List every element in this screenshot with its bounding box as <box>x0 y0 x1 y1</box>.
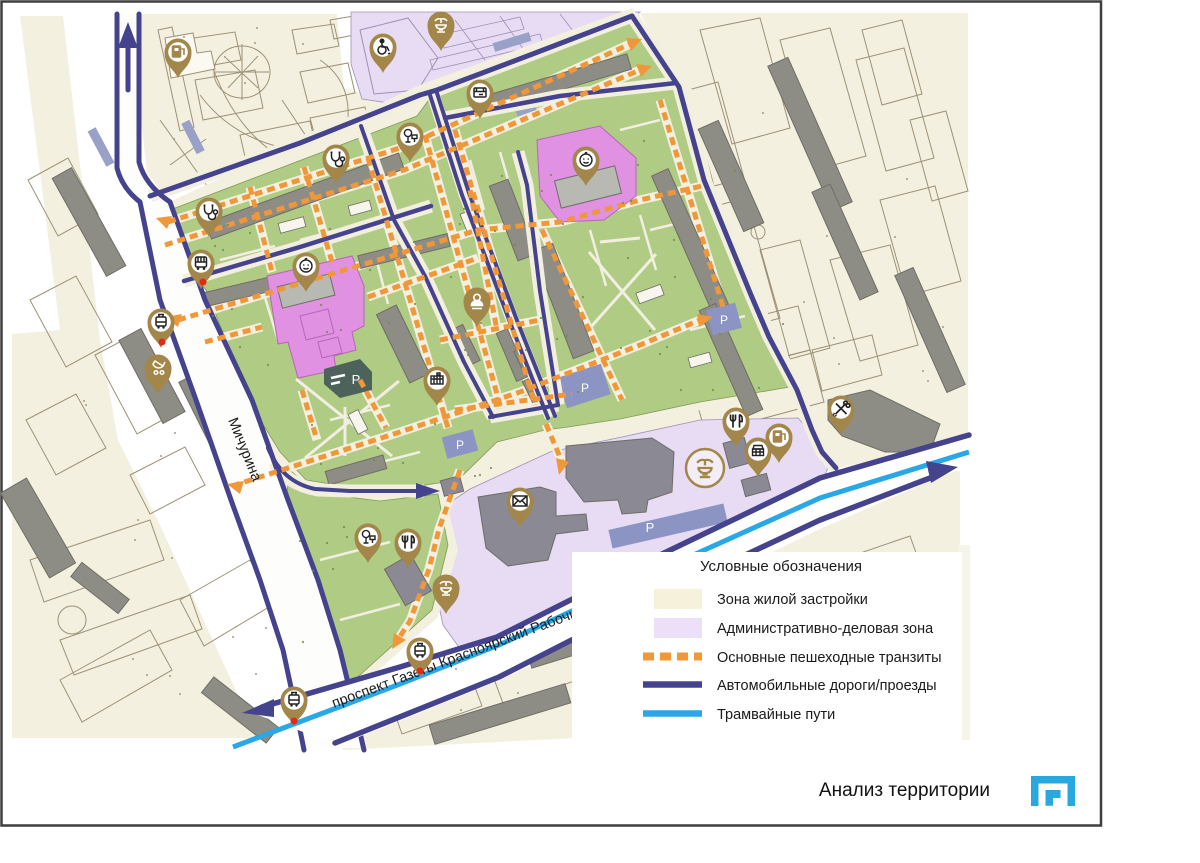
svg-text:Автомобильные дороги/проезды: Автомобильные дороги/проезды <box>717 678 937 694</box>
svg-text:Условные обозначения: Условные обозначения <box>700 558 862 575</box>
svg-text:Анализ территории: Анализ территории <box>819 780 990 801</box>
svg-text:P: P <box>646 520 655 535</box>
svg-text:Зона жилой застройки: Зона жилой застройки <box>717 592 868 608</box>
svg-text:P: P <box>720 313 728 327</box>
svg-text:Трамвайные пути: Трамвайные пути <box>717 707 835 723</box>
svg-text:P: P <box>456 438 464 452</box>
svg-text:Основные пешеходные транзиты: Основные пешеходные транзиты <box>717 650 942 666</box>
svg-text:P: P <box>352 372 361 387</box>
svg-text:Административно-деловая зона: Административно-деловая зона <box>717 621 934 637</box>
svg-text:P: P <box>581 381 589 395</box>
